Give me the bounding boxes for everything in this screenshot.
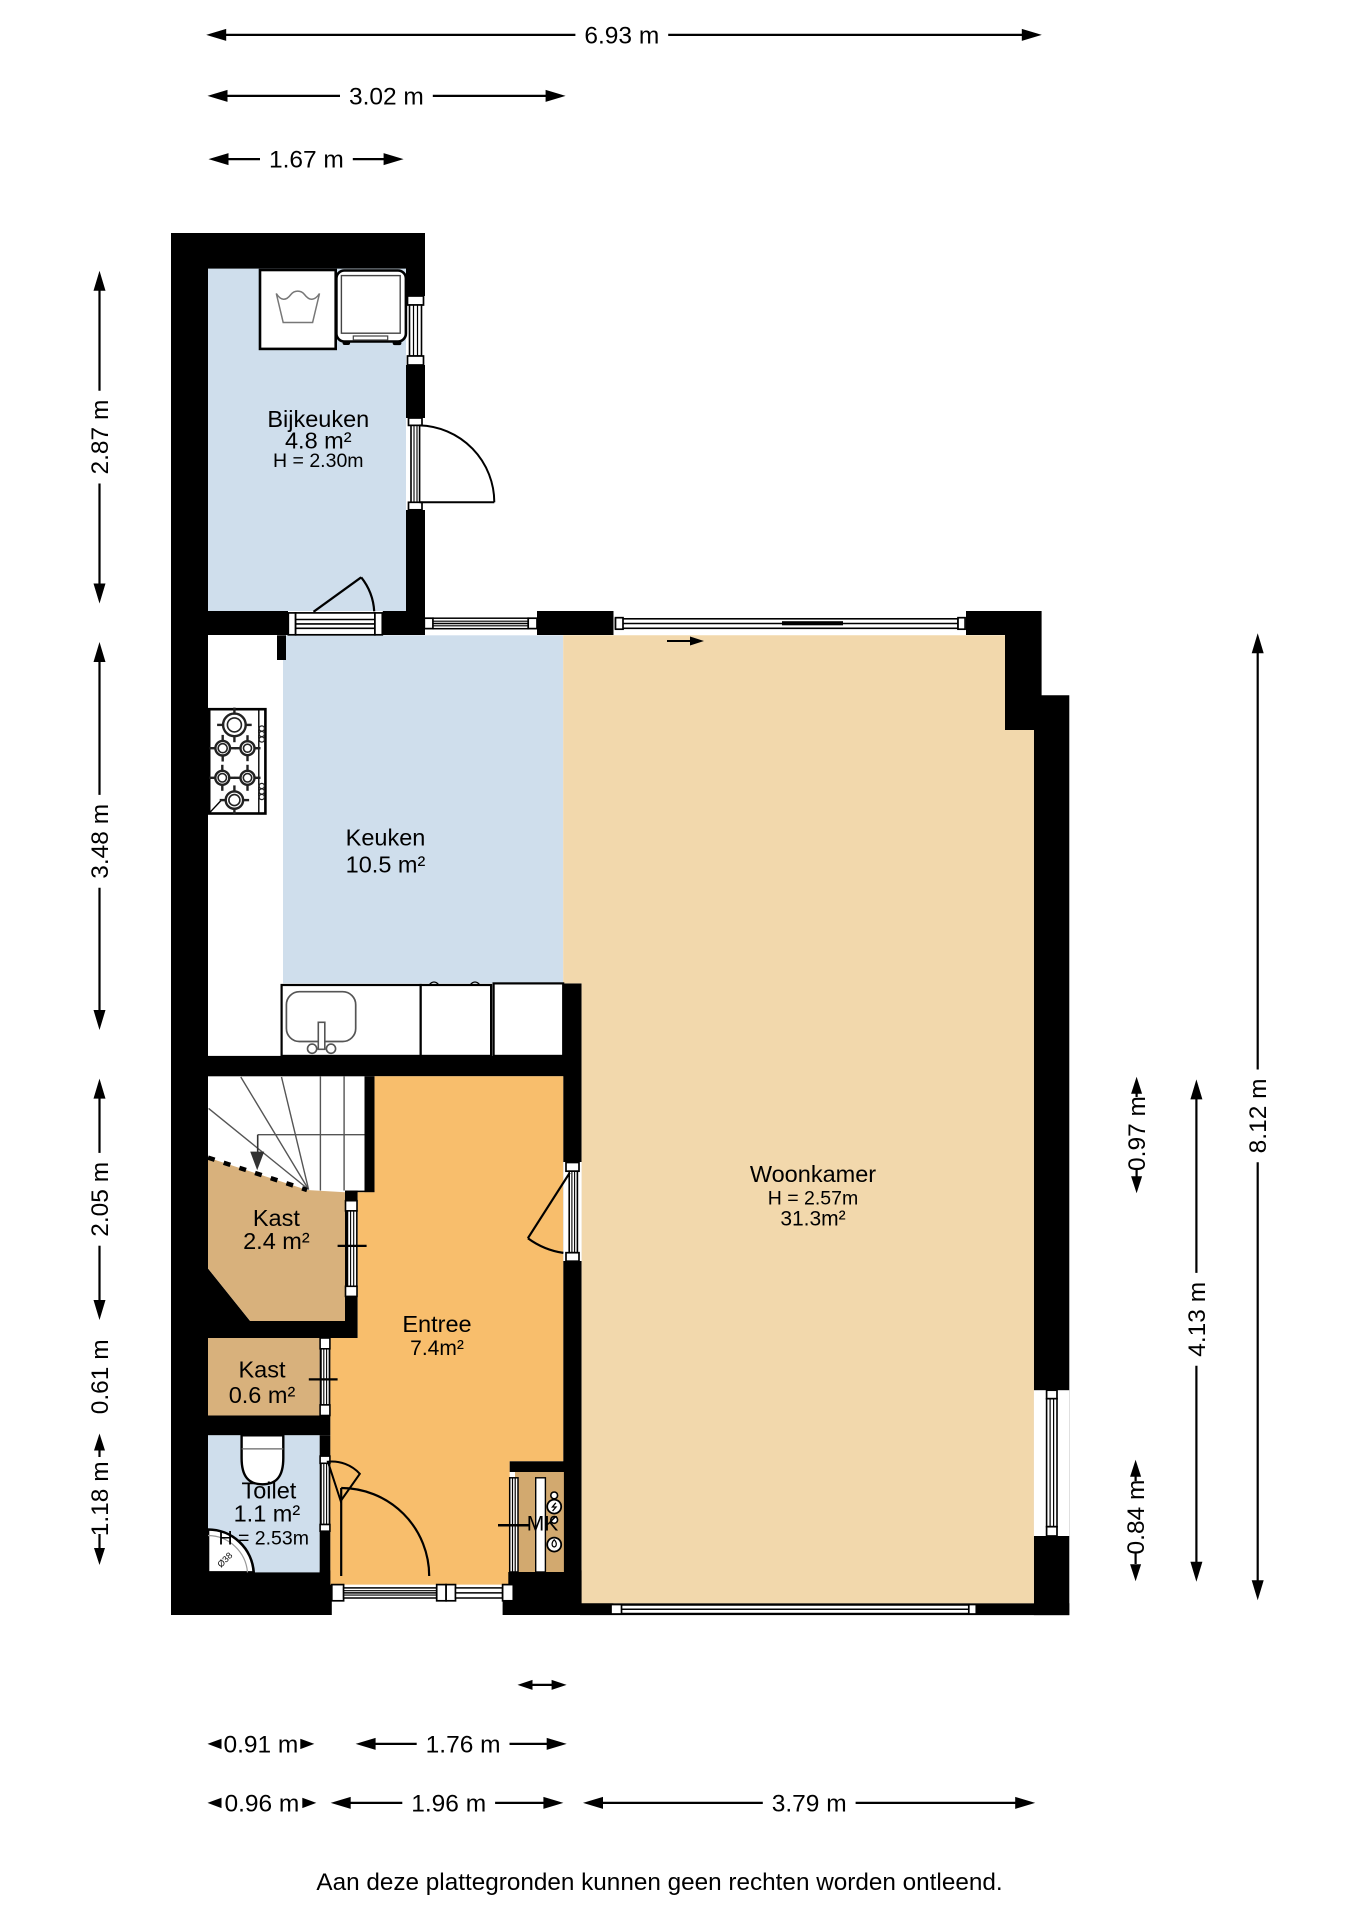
svg-text:Keuken: Keuken: [346, 825, 426, 851]
svg-text:H = 2.53m: H = 2.53m: [218, 1528, 309, 1550]
svg-text:2.05 m: 2.05 m: [87, 1162, 114, 1237]
svg-text:3.48 m: 3.48 m: [87, 804, 114, 879]
svg-text:1.1 m²: 1.1 m²: [234, 1501, 301, 1527]
svg-text:1.18 m: 1.18 m: [87, 1461, 114, 1536]
svg-text:Entree: Entree: [402, 1311, 471, 1337]
svg-text:Kast: Kast: [238, 1357, 285, 1383]
svg-text:8.12 m: 8.12 m: [1245, 1078, 1272, 1153]
svg-text:H = 2.30m: H = 2.30m: [273, 450, 364, 472]
svg-text:6.93 m: 6.93 m: [584, 22, 659, 49]
svg-text:Aan deze plattegronden kunnen: Aan deze plattegronden kunnen geen recht…: [316, 1869, 1002, 1896]
svg-text:Woonkamer: Woonkamer: [750, 1161, 876, 1187]
svg-text:MK: MK: [527, 1513, 559, 1536]
svg-text:3.79 m: 3.79 m: [772, 1790, 847, 1817]
svg-text:4.13 m: 4.13 m: [1184, 1282, 1211, 1357]
svg-text:0.96 m: 0.96 m: [224, 1790, 299, 1817]
svg-text:0.91 m: 0.91 m: [223, 1731, 298, 1758]
svg-text:10.5 m²: 10.5 m²: [346, 852, 426, 878]
svg-text:1.96 m: 1.96 m: [411, 1790, 486, 1817]
svg-text:0.97 m: 0.97 m: [1124, 1096, 1151, 1171]
svg-text:31.3m²: 31.3m²: [780, 1208, 845, 1231]
svg-text:1.76 m: 1.76 m: [426, 1731, 501, 1758]
svg-text:0.84 m: 0.84 m: [1123, 1480, 1150, 1555]
svg-text:H = 2.57m: H = 2.57m: [768, 1188, 859, 1210]
svg-text:0.6 m²: 0.6 m²: [229, 1382, 296, 1408]
svg-text:3.02 m: 3.02 m: [349, 83, 424, 110]
svg-text:7.4m²: 7.4m²: [410, 1337, 464, 1360]
svg-text:2.4 m²: 2.4 m²: [243, 1228, 310, 1254]
svg-text:0.61 m: 0.61 m: [87, 1339, 114, 1414]
svg-text:2.87 m: 2.87 m: [87, 400, 114, 475]
svg-text:1.67 m: 1.67 m: [269, 147, 344, 174]
